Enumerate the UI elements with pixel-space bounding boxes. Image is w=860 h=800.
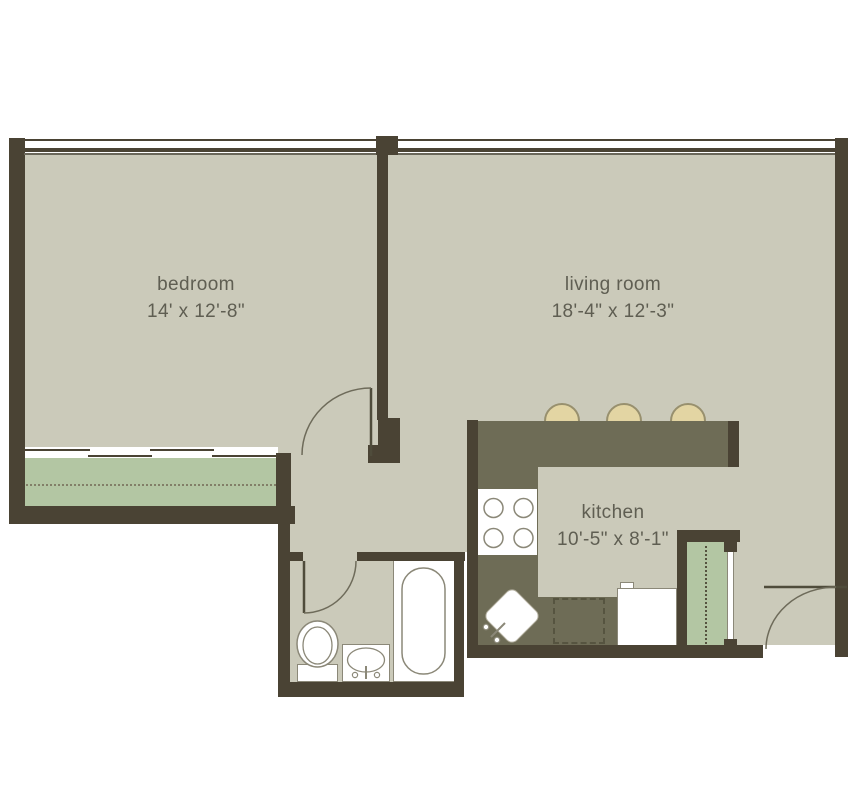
living-room-dimensions: 18'-4" x 12'-3" — [503, 298, 723, 325]
wall-divider-block — [378, 418, 400, 448]
living-window-inner — [398, 153, 835, 155]
living-window-glass — [398, 148, 835, 152]
wall-bottom — [467, 645, 763, 658]
wall-kitchen-left — [467, 420, 478, 658]
bedroom-window-glass — [24, 148, 376, 152]
toilet-tank — [297, 664, 338, 682]
dishwasher — [553, 598, 605, 644]
refrigerator — [617, 588, 677, 648]
living-room-name: living room — [503, 271, 723, 298]
wall-right — [835, 138, 848, 657]
wall-bathroom-left — [278, 506, 290, 697]
pantry-closet — [686, 542, 730, 648]
wall-bathroom-bottom — [278, 682, 464, 697]
wall-room-divider — [377, 150, 388, 420]
wall-bathroom-top-left — [288, 552, 303, 561]
kitchen-dimensions: 10'-5" x 8'-1" — [503, 526, 723, 553]
wall-pantry-jamb-top — [724, 542, 737, 552]
wall-divider-foot — [368, 445, 400, 463]
wall-bathroom-top-right — [357, 552, 465, 561]
pantry-door — [727, 551, 734, 641]
living-room-label: living room 18'-4" x 12'-3" — [503, 271, 723, 325]
wall-left — [9, 138, 25, 524]
living-window-outer — [398, 139, 835, 142]
wall-bedroom-bottom — [9, 506, 295, 524]
sliding-door-panel — [24, 449, 90, 452]
bedroom-name: bedroom — [86, 271, 306, 298]
breakfast-bar — [476, 421, 738, 467]
bathtub — [393, 559, 455, 682]
wall-bathroom-right — [454, 552, 464, 697]
closet-rod — [26, 484, 276, 486]
sliding-door-panel — [150, 449, 214, 452]
kitchen-name: kitchen — [503, 499, 723, 526]
bedroom-window-outer — [24, 139, 376, 142]
vanity — [342, 644, 390, 682]
sliding-door-panel — [212, 455, 278, 458]
kitchen-label: kitchen 10'-5" x 8'-1" — [503, 499, 723, 553]
sliding-door-panel — [88, 455, 152, 458]
pantry-center-line — [705, 546, 707, 644]
bedroom-dimensions: 14' x 12'-8" — [86, 298, 306, 325]
wall-bar-end-cap — [728, 421, 739, 467]
floor-plan: bedroom 14' x 12'-8" living room 18'-4" … — [0, 0, 860, 800]
bedroom-label: bedroom 14' x 12'-8" — [86, 271, 306, 325]
bedroom-window-inner — [24, 153, 376, 155]
